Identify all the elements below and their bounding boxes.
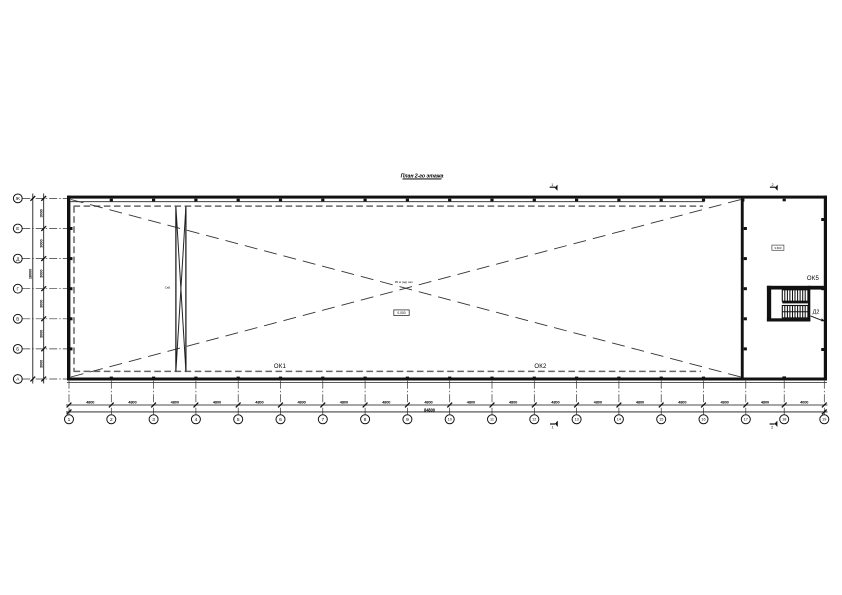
svg-text:2: 2 [771,183,773,187]
svg-text:84800: 84800 [424,407,436,412]
svg-text:Б: Б [16,347,19,352]
svg-text:0.000: 0.000 [397,311,405,315]
svg-text:18: 18 [782,418,786,422]
svg-text:В: В [16,317,19,322]
svg-text:Св5: Св5 [165,285,171,289]
svg-text:ОК5: ОК5 [807,276,820,282]
svg-text:3000: 3000 [38,239,43,247]
svg-text:4: 4 [195,417,198,423]
svg-text:1: 1 [68,417,71,423]
svg-text:4000: 4000 [800,400,808,405]
svg-text:2: 2 [771,426,773,430]
svg-text:4800: 4800 [594,400,602,405]
svg-text:10: 10 [448,418,452,422]
svg-text:4800: 4800 [551,400,559,405]
svg-text:3000: 3000 [38,360,43,368]
svg-text:4800: 4800 [761,400,769,405]
svg-text:6: 6 [279,417,282,423]
svg-text:2: 2 [110,417,113,423]
svg-text:9: 9 [406,417,409,423]
svg-text:12: 12 [532,418,536,422]
svg-text:4800: 4800 [382,400,390,405]
svg-text:4800: 4800 [128,400,136,405]
svg-text:3000: 3000 [38,270,43,278]
svg-text:18000: 18000 [27,269,32,279]
svg-text:8: 8 [364,417,367,423]
svg-text:4800: 4800 [636,400,644,405]
svg-text:3000: 3000 [38,209,43,217]
svg-text:4800: 4800 [171,400,179,405]
svg-text:19: 19 [822,418,826,422]
svg-text:4800: 4800 [467,400,475,405]
svg-text:16: 16 [701,418,705,422]
svg-text:4800: 4800 [213,400,221,405]
svg-text:Ж: Ж [16,196,21,201]
svg-text:3: 3 [152,417,155,423]
svg-text:11: 11 [490,418,494,422]
svg-text:17: 17 [744,418,748,422]
svg-text:35 м (од) зал: 35 м (од) зал [395,280,413,284]
svg-text:15: 15 [659,418,663,422]
svg-text:13: 13 [574,418,578,422]
svg-text:4800: 4800 [255,400,263,405]
svg-text:7: 7 [321,417,324,423]
svg-text:ОК1: ОК1 [274,364,287,370]
svg-text:Е: Е [16,226,19,231]
svg-text:14: 14 [617,418,621,422]
svg-text:5: 5 [237,417,240,423]
svg-text:4800: 4800 [509,400,517,405]
svg-text:3000: 3000 [38,300,43,308]
svg-text:3.600: 3.600 [774,246,781,250]
svg-text:ОК2: ОК2 [534,364,547,370]
svg-text:4800: 4800 [340,400,348,405]
svg-text:Д2: Д2 [813,309,820,315]
svg-text:4800: 4800 [678,400,686,405]
svg-text:4800: 4800 [86,400,94,405]
svg-text:1: 1 [551,426,553,430]
svg-text:3000: 3000 [38,330,43,338]
svg-text:4800: 4800 [720,400,728,405]
svg-text:4800: 4800 [297,400,305,405]
svg-text:4800: 4800 [424,400,432,405]
svg-text:1: 1 [551,183,553,187]
